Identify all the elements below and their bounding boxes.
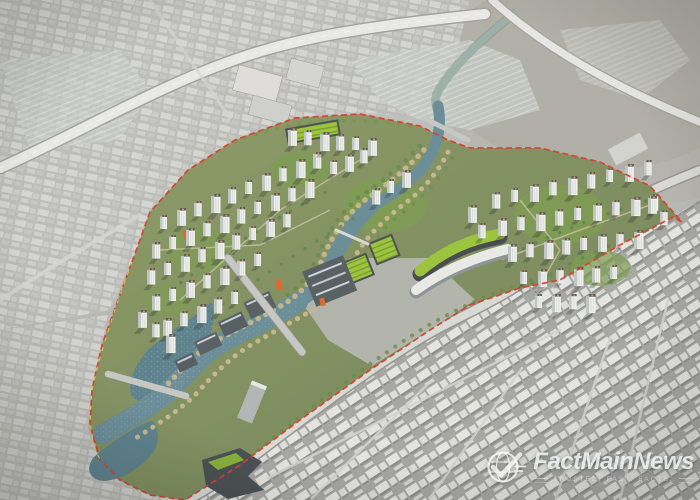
aerial-photo-scene [0, 0, 700, 500]
vignette [0, 0, 700, 500]
aerial-masterplan-rendering: FactMainNews TRUSTED. FAST. FACTS. [0, 0, 700, 500]
